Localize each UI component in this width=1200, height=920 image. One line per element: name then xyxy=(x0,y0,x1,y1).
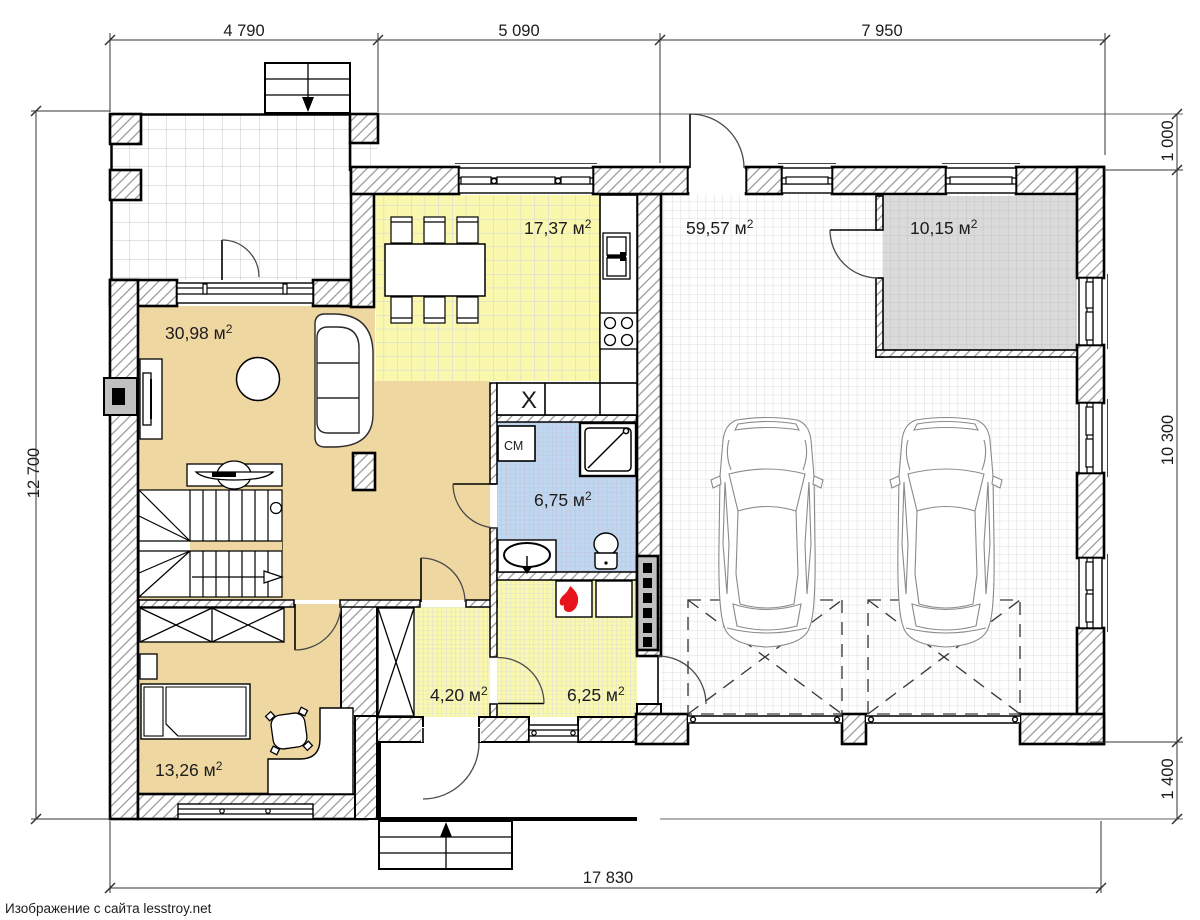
svg-text:17 830: 17 830 xyxy=(583,869,633,887)
svg-text:5 090: 5 090 xyxy=(498,22,539,40)
svg-text:13,26 м2: 13,26 м2 xyxy=(155,759,223,780)
svg-text:Х: Х xyxy=(521,387,537,414)
svg-text:СМ: СМ xyxy=(504,439,523,453)
svg-text:1 400: 1 400 xyxy=(1159,758,1177,799)
svg-text:6,75 м2: 6,75 м2 xyxy=(534,489,592,510)
svg-text:17,37 м2: 17,37 м2 xyxy=(524,217,592,238)
svg-text:4 790: 4 790 xyxy=(223,22,264,40)
svg-text:Изображение с сайта lesstroy.n: Изображение с сайта lesstroy.net xyxy=(5,901,212,916)
svg-text:10 300: 10 300 xyxy=(1159,415,1177,465)
svg-text:30,98 м2: 30,98 м2 xyxy=(165,322,233,343)
svg-text:59,57 м2: 59,57 м2 xyxy=(686,217,754,238)
svg-text:10,15 м2: 10,15 м2 xyxy=(910,217,978,238)
svg-text:4,20 м2: 4,20 м2 xyxy=(430,684,488,705)
svg-text:6,25 м2: 6,25 м2 xyxy=(567,684,625,705)
svg-text:1 000: 1 000 xyxy=(1159,120,1177,161)
svg-text:12 700: 12 700 xyxy=(25,448,43,498)
svg-text:7 950: 7 950 xyxy=(861,22,902,40)
